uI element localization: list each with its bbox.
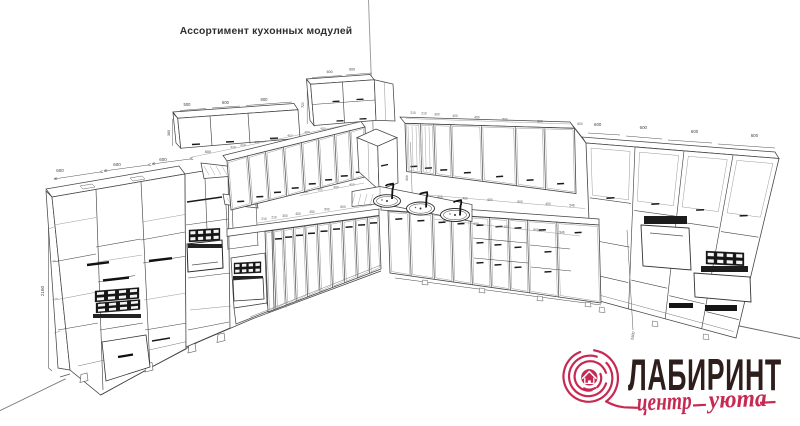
svg-text:уюта: уюта xyxy=(705,385,767,414)
svg-text:210: 210 xyxy=(261,217,267,221)
svg-text:600: 600 xyxy=(222,100,230,105)
svg-text:600: 600 xyxy=(56,168,64,173)
svg-text:Ассортимент кухонных модулей: Ассортимент кухонных модулей xyxy=(180,26,353,37)
svg-text:600: 600 xyxy=(340,205,346,209)
svg-text:800: 800 xyxy=(533,228,539,232)
svg-text:210: 210 xyxy=(421,112,427,116)
svg-text:600: 600 xyxy=(577,122,583,126)
svg-text:400: 400 xyxy=(295,212,301,216)
svg-text:800: 800 xyxy=(261,97,269,102)
svg-text:500: 500 xyxy=(324,208,330,212)
svg-text:210: 210 xyxy=(271,216,277,220)
svg-text:600: 600 xyxy=(405,175,409,181)
svg-text:600: 600 xyxy=(751,133,759,138)
svg-text:600: 600 xyxy=(640,125,648,130)
svg-text:720: 720 xyxy=(301,102,305,108)
svg-text:центр: центр xyxy=(636,388,692,417)
svg-text:500: 500 xyxy=(184,102,192,107)
svg-text:600: 600 xyxy=(691,129,699,134)
svg-text:450: 450 xyxy=(474,116,480,120)
svg-text:2160: 2160 xyxy=(40,285,45,296)
svg-text:600: 600 xyxy=(113,162,121,167)
svg-text:450: 450 xyxy=(349,183,354,187)
svg-text:600: 600 xyxy=(327,70,333,74)
svg-text:600: 600 xyxy=(349,68,355,72)
svg-text:400: 400 xyxy=(452,114,458,118)
svg-text:300: 300 xyxy=(282,214,288,218)
svg-text:600: 600 xyxy=(594,122,602,127)
svg-text:800: 800 xyxy=(517,200,523,204)
svg-text:360: 360 xyxy=(167,130,171,136)
svg-text:500: 500 xyxy=(502,118,508,122)
svg-text:600: 600 xyxy=(159,157,167,162)
svg-text:300: 300 xyxy=(434,113,440,117)
svg-text:450: 450 xyxy=(309,210,315,214)
svg-text:210: 210 xyxy=(410,111,416,115)
svg-text:546: 546 xyxy=(569,204,575,208)
